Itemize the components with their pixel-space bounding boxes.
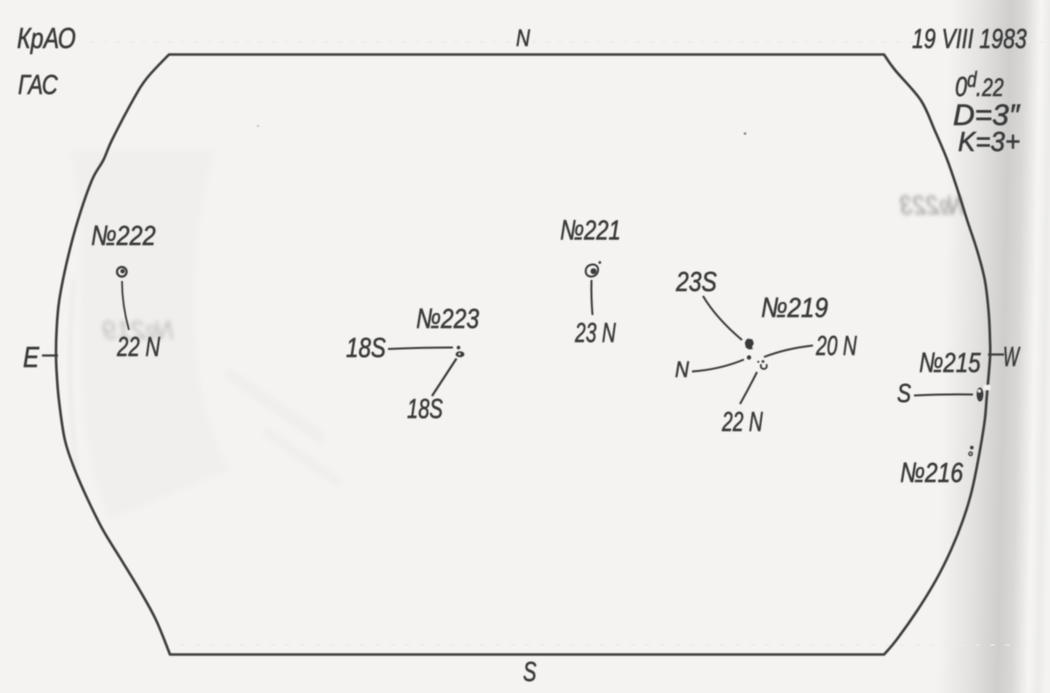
svg-text:18S: 18S [407,394,443,425]
svg-text:19 VIII 1983: 19 VIII 1983 [912,23,1027,55]
svg-text:S: S [523,657,536,688]
svg-text:K=3+: K=3+ [958,126,1020,157]
svg-text:23S: 23S [675,267,717,298]
svg-text:№216: №216 [900,458,964,489]
svg-text:18S: 18S [346,333,386,364]
svg-text:N: N [516,24,530,51]
svg-text:23 N: 23 N [574,318,616,349]
svg-text:№222: №222 [91,221,156,251]
svg-text:E: E [23,341,39,374]
svg-text:№223: №223 [900,192,965,220]
svg-text:N: N [675,358,689,382]
svg-text:20 N: 20 N [815,331,857,362]
svg-text:№221: №221 [560,215,621,246]
svg-text:W: W [1003,341,1021,372]
svg-text:22 N: 22 N [116,332,160,363]
svg-text:0d.22: 0d.22 [955,68,1004,103]
svg-text:№219: №219 [761,291,828,323]
svg-text:ГАС: ГАС [18,70,58,101]
svg-text:КрАО: КрАО [17,21,76,54]
svg-text:№215: №215 [919,348,981,379]
svg-text:S: S [897,380,911,409]
svg-text:№223: №223 [416,304,480,335]
svg-text:22 N: 22 N [721,407,763,438]
